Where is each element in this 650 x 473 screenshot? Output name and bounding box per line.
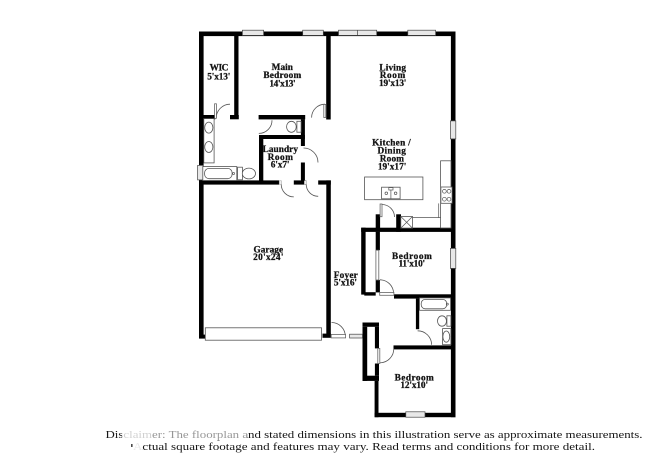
- svg-text:5'x13': 5'x13': [207, 72, 230, 82]
- svg-text:14'x13': 14'x13': [269, 80, 295, 90]
- svg-text:Actual square footage and feat: Actual square footage and features may v…: [133, 441, 595, 453]
- svg-text:11'x10': 11'x10': [399, 260, 426, 270]
- svg-text:20'x24': 20'x24': [253, 253, 283, 263]
- svg-text:12'x10': 12'x10': [400, 381, 428, 391]
- svg-text:19'x13': 19'x13': [379, 79, 406, 89]
- svg-text:19'x17': 19'x17': [378, 163, 407, 173]
- svg-text:5'x16': 5'x16': [334, 278, 357, 288]
- svg-text:6'x7': 6'x7': [271, 161, 290, 171]
